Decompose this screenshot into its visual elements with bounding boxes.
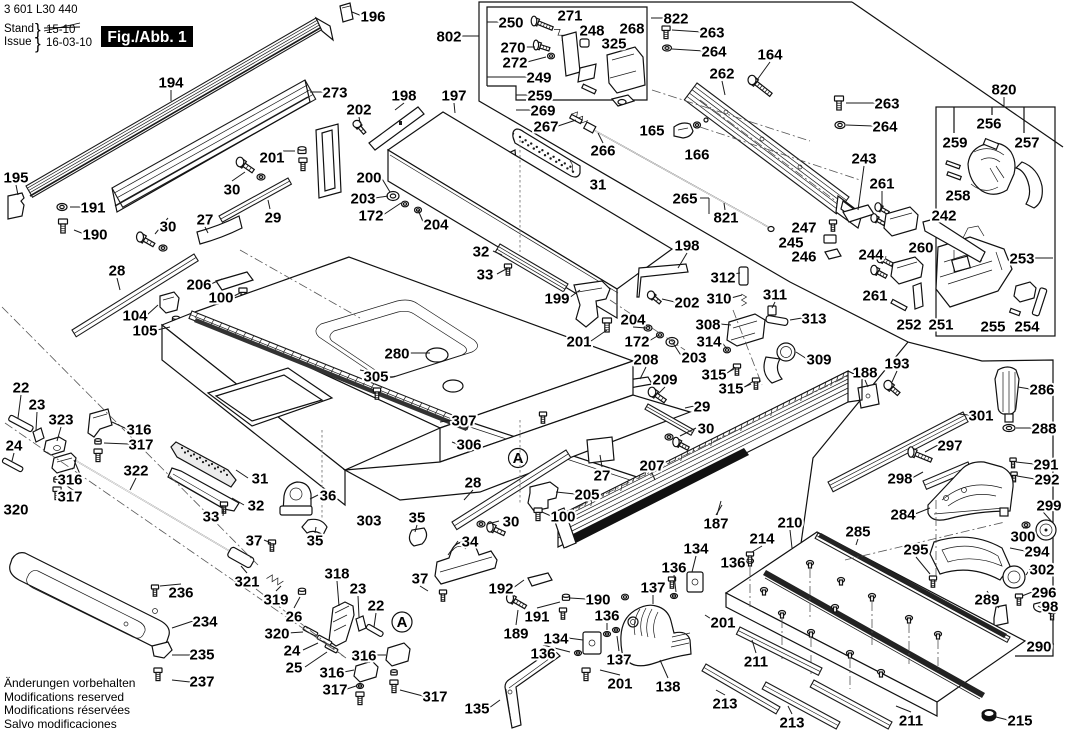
svg-text:22: 22 <box>13 380 30 397</box>
svg-text:249: 249 <box>526 70 551 87</box>
svg-text:203: 203 <box>350 191 375 208</box>
svg-text:297: 297 <box>937 438 962 455</box>
svg-text:264: 264 <box>701 44 727 61</box>
svg-text:215: 215 <box>1007 713 1032 730</box>
svg-text:3 601 L30 440: 3 601 L30 440 <box>4 4 78 16</box>
svg-text:235: 235 <box>189 647 214 664</box>
svg-text:286: 286 <box>1029 382 1054 399</box>
svg-text:260: 260 <box>908 240 933 257</box>
svg-text:26: 26 <box>286 609 303 626</box>
svg-text:295: 295 <box>903 542 928 559</box>
svg-text:Modifications reserved: Modifications reserved <box>4 690 124 704</box>
svg-text:187: 187 <box>703 516 728 533</box>
svg-text:201: 201 <box>259 150 284 167</box>
svg-text:193: 193 <box>884 356 909 373</box>
svg-text:203: 203 <box>681 350 706 367</box>
svg-text:234: 234 <box>192 614 218 631</box>
svg-text:23: 23 <box>350 581 367 598</box>
svg-text:802: 802 <box>436 29 461 46</box>
svg-text:195: 195 <box>3 170 28 187</box>
svg-text:191: 191 <box>80 200 105 217</box>
svg-text:308: 308 <box>695 317 720 334</box>
svg-text:302: 302 <box>1029 562 1054 579</box>
svg-text:202: 202 <box>674 295 699 312</box>
svg-text:256: 256 <box>976 116 1001 133</box>
svg-text:189: 189 <box>503 626 528 643</box>
svg-text:165: 165 <box>639 123 664 140</box>
svg-text:105: 105 <box>132 323 157 340</box>
svg-text:243: 243 <box>851 151 876 168</box>
svg-text:202: 202 <box>346 102 371 119</box>
svg-text:30: 30 <box>503 514 520 531</box>
svg-text:242: 242 <box>931 208 956 225</box>
svg-text:299: 299 <box>1036 498 1061 515</box>
svg-text:198: 198 <box>391 88 416 105</box>
svg-text:252: 252 <box>896 317 921 334</box>
svg-text:213: 213 <box>712 696 737 713</box>
svg-text:16-03-10: 16-03-10 <box>46 37 92 49</box>
svg-text:289: 289 <box>974 592 999 609</box>
svg-text:32: 32 <box>473 244 490 261</box>
svg-text:312: 312 <box>710 270 735 287</box>
svg-text:192: 192 <box>488 581 513 598</box>
svg-text:292: 292 <box>1034 472 1059 489</box>
svg-text:29: 29 <box>265 210 282 227</box>
svg-text:24: 24 <box>284 643 301 660</box>
svg-text:251: 251 <box>928 317 953 334</box>
svg-text:280: 280 <box>384 346 409 363</box>
svg-text:290: 290 <box>1026 639 1051 656</box>
svg-text:190: 190 <box>585 592 610 609</box>
svg-text:33: 33 <box>477 267 494 284</box>
svg-text:322: 322 <box>123 463 148 480</box>
svg-text:34: 34 <box>462 534 479 551</box>
svg-text:266: 266 <box>590 143 615 160</box>
svg-text:317: 317 <box>128 437 153 454</box>
svg-text:822: 822 <box>663 11 688 28</box>
svg-text:250: 250 <box>498 15 523 32</box>
svg-text:262: 262 <box>709 66 734 83</box>
svg-text:255: 255 <box>980 319 1005 336</box>
svg-text:35: 35 <box>307 533 324 550</box>
svg-text:317: 317 <box>422 689 447 706</box>
svg-text:Änderungen vorbehalten: Änderungen vorbehalten <box>4 676 135 690</box>
svg-text:36: 36 <box>320 488 337 505</box>
svg-text:246: 246 <box>791 249 816 266</box>
svg-text:316: 316 <box>351 648 376 665</box>
svg-text:301: 301 <box>968 408 993 425</box>
svg-text:201: 201 <box>566 334 591 351</box>
svg-text:258: 258 <box>945 188 970 205</box>
svg-text:263: 263 <box>874 96 899 113</box>
svg-text:320: 320 <box>264 626 289 643</box>
svg-text:35: 35 <box>409 510 426 527</box>
svg-text:305: 305 <box>363 369 388 386</box>
svg-text:320: 320 <box>3 502 28 519</box>
svg-text:136: 136 <box>530 646 555 663</box>
svg-text:23: 23 <box>29 397 46 414</box>
svg-text:201: 201 <box>710 615 735 632</box>
svg-text:319: 319 <box>263 592 288 609</box>
svg-text:27: 27 <box>594 468 611 485</box>
svg-text:A: A <box>397 614 408 631</box>
svg-text:306: 306 <box>456 437 481 454</box>
svg-text:137: 137 <box>640 580 665 597</box>
svg-text:323: 323 <box>48 412 73 429</box>
svg-text:135: 135 <box>464 701 489 718</box>
svg-text:37: 37 <box>412 571 429 588</box>
svg-text:190: 190 <box>82 227 107 244</box>
svg-text:261: 261 <box>869 176 894 193</box>
svg-text:318: 318 <box>324 566 349 583</box>
svg-text:325: 325 <box>601 36 626 53</box>
svg-text:136: 136 <box>661 560 686 577</box>
svg-text:284: 284 <box>890 507 916 524</box>
svg-text:821: 821 <box>713 210 738 227</box>
svg-text:30: 30 <box>160 219 177 236</box>
svg-text:201: 201 <box>607 676 632 693</box>
svg-text:272: 272 <box>502 55 527 72</box>
svg-text:31: 31 <box>252 471 269 488</box>
svg-text:303: 303 <box>356 513 381 530</box>
svg-text:269: 269 <box>530 103 555 120</box>
svg-text:294: 294 <box>1024 544 1050 561</box>
svg-text:307: 307 <box>451 413 476 430</box>
svg-text:22: 22 <box>368 598 385 615</box>
svg-text:313: 313 <box>801 311 826 328</box>
svg-text:138: 138 <box>655 679 680 696</box>
svg-text:207: 207 <box>639 458 664 475</box>
svg-text:244: 244 <box>858 247 884 264</box>
svg-text:198: 198 <box>674 238 699 255</box>
svg-text:27: 27 <box>197 212 214 229</box>
svg-text:311: 311 <box>763 287 787 304</box>
svg-text:199: 199 <box>544 291 569 308</box>
svg-text:28: 28 <box>465 475 482 492</box>
svg-text:137: 137 <box>606 652 631 669</box>
svg-text:29: 29 <box>694 399 711 416</box>
svg-text:267: 267 <box>533 119 558 136</box>
svg-text:100: 100 <box>550 509 575 526</box>
svg-text:236: 236 <box>168 585 193 602</box>
svg-text:Salvo modificaciones: Salvo modificaciones <box>4 717 117 730</box>
svg-text:Issue: Issue <box>4 36 32 48</box>
svg-text:31: 31 <box>590 177 607 194</box>
svg-text:317: 317 <box>57 489 82 506</box>
svg-text:24: 24 <box>6 438 23 455</box>
svg-text:214: 214 <box>749 531 775 548</box>
svg-text:197: 197 <box>441 88 466 105</box>
svg-text:A: A <box>513 450 524 467</box>
svg-text:}: } <box>35 34 41 53</box>
svg-text:263: 263 <box>699 25 724 42</box>
svg-text:213: 213 <box>779 715 804 730</box>
svg-text:254: 254 <box>1014 319 1040 336</box>
svg-text:188: 188 <box>852 365 877 382</box>
svg-text:Stand: Stand <box>4 23 34 35</box>
svg-text:820: 820 <box>991 82 1016 99</box>
svg-text:172: 172 <box>624 334 649 351</box>
svg-text:209: 209 <box>652 372 677 389</box>
svg-text:253: 253 <box>1009 251 1034 268</box>
svg-text:211: 211 <box>744 654 768 671</box>
svg-text:196: 196 <box>360 9 385 26</box>
svg-text:210: 210 <box>777 515 802 532</box>
svg-text:205: 205 <box>574 487 599 504</box>
svg-text:136: 136 <box>594 608 619 625</box>
svg-text:317: 317 <box>322 682 347 699</box>
svg-text:273: 273 <box>322 85 347 102</box>
svg-text:310: 310 <box>706 291 731 308</box>
svg-text:28: 28 <box>109 263 126 280</box>
svg-text:Fig./Abb. 1: Fig./Abb. 1 <box>107 29 187 46</box>
svg-text:172: 172 <box>358 208 383 225</box>
svg-text:15-10: 15-10 <box>46 24 75 36</box>
svg-text:32: 32 <box>248 498 265 515</box>
svg-text:288: 288 <box>1031 421 1056 438</box>
svg-text:164: 164 <box>757 47 783 64</box>
svg-text:204: 204 <box>620 312 646 329</box>
svg-text:30: 30 <box>698 421 715 438</box>
svg-text:200: 200 <box>356 170 381 187</box>
svg-text:237: 237 <box>189 674 214 691</box>
svg-text:25: 25 <box>286 660 303 677</box>
svg-text:264: 264 <box>872 119 898 136</box>
svg-text:315: 315 <box>718 381 743 398</box>
svg-text:321: 321 <box>234 574 259 591</box>
svg-text:166: 166 <box>684 147 709 164</box>
svg-text:285: 285 <box>845 524 870 541</box>
svg-text:98: 98 <box>1042 599 1059 616</box>
svg-text:316: 316 <box>57 472 82 489</box>
svg-text:194: 194 <box>158 75 184 92</box>
svg-text:30: 30 <box>224 182 241 199</box>
svg-text:309: 309 <box>806 352 831 369</box>
svg-text:204: 204 <box>423 217 449 234</box>
svg-text:261: 261 <box>862 288 887 305</box>
svg-text:298: 298 <box>887 471 912 488</box>
svg-text:136: 136 <box>720 555 745 572</box>
svg-text:134: 134 <box>683 541 709 558</box>
svg-text:314: 314 <box>696 334 722 351</box>
svg-text:191: 191 <box>524 609 549 626</box>
svg-text:257: 257 <box>1014 135 1039 152</box>
svg-text:259: 259 <box>942 135 967 152</box>
svg-text:208: 208 <box>633 352 658 369</box>
svg-text:Modifications réservées: Modifications réservées <box>4 703 130 717</box>
svg-text:37: 37 <box>246 533 263 550</box>
svg-text:211: 211 <box>899 713 923 730</box>
svg-text:100: 100 <box>208 290 233 307</box>
svg-text:33: 33 <box>203 509 220 526</box>
svg-text:265: 265 <box>672 191 697 208</box>
svg-text:316: 316 <box>319 665 344 682</box>
